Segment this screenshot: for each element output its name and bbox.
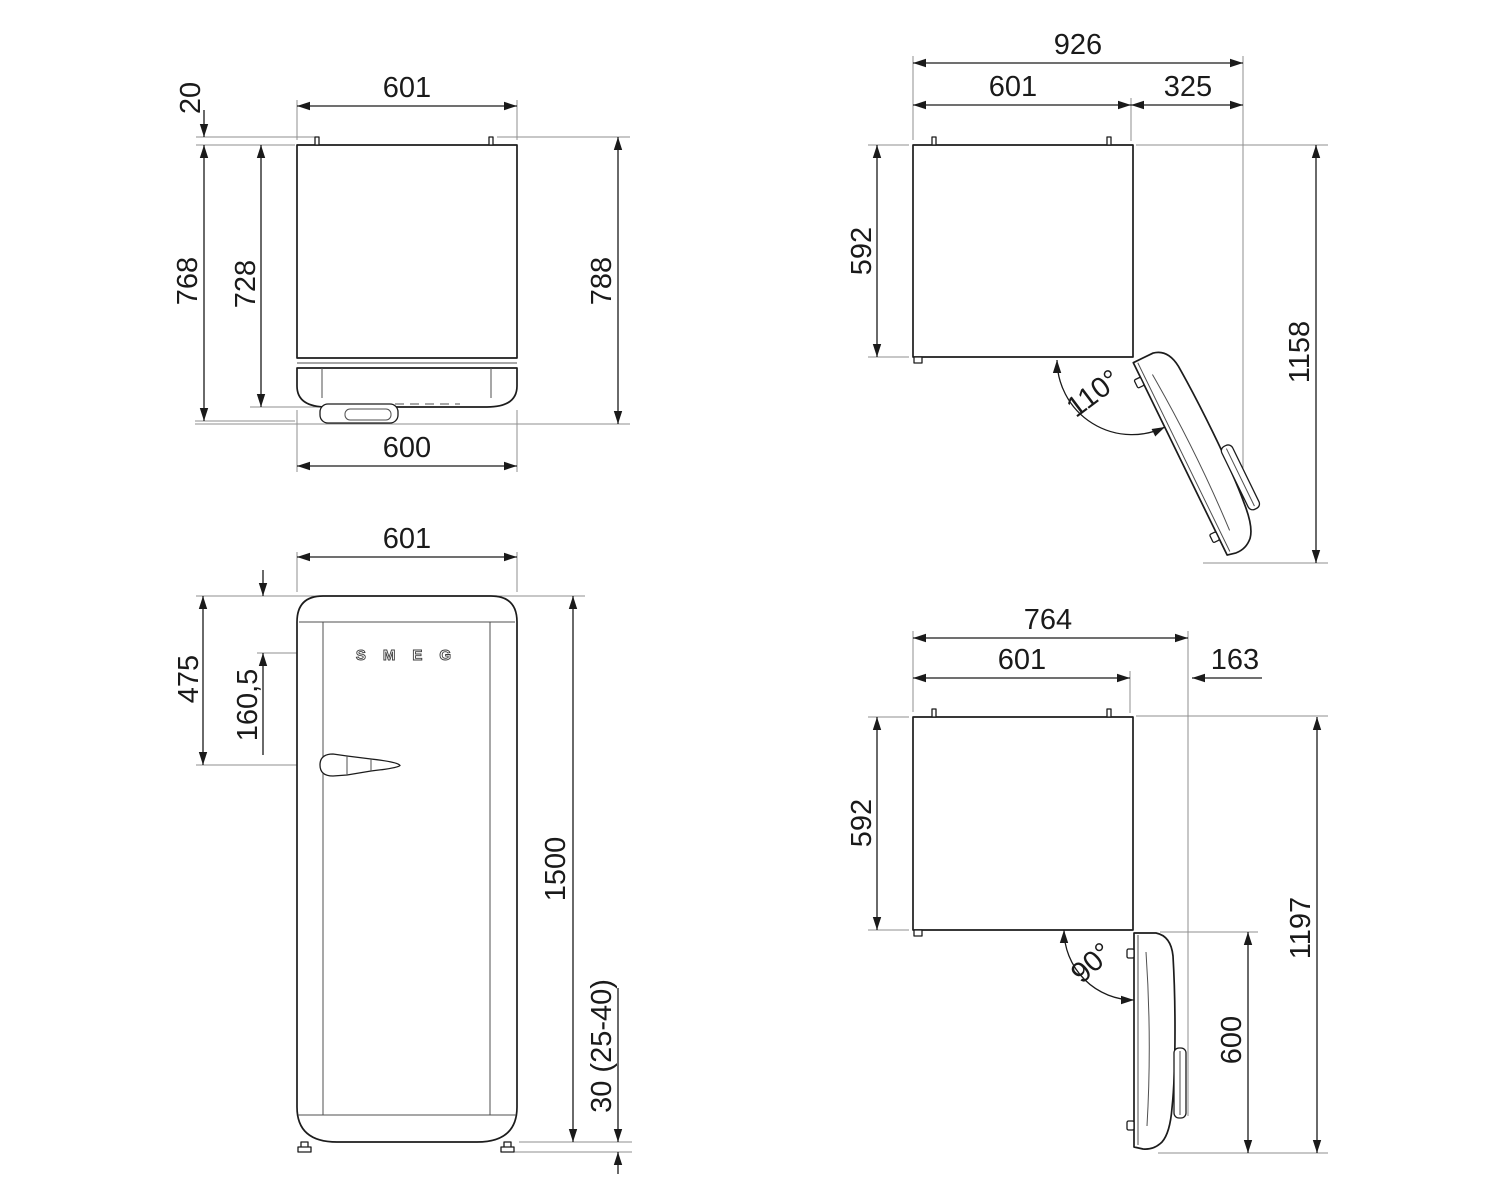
dim-label-open-depth: 1158 [1284,321,1316,383]
brand-logo: SMEG [356,647,468,664]
dim-label-total-width: 926 [1054,29,1102,61]
dim-label-height: 1500 [540,837,572,902]
dim-label-depth-768: 768 [172,257,204,305]
dim-label-total-width: 764 [1024,604,1072,636]
dim-label-cabinet-width: 601 [998,644,1046,676]
dim-label-door-angle: 110° [1061,364,1126,424]
fridge-front-body [297,596,517,1142]
hinge-pin-left-icon [315,137,319,145]
cabinet-body [913,145,1133,357]
hinge-pin-left-icon [932,709,936,717]
open-door-90 [1127,933,1186,1149]
foot-tab [914,930,922,936]
dim-label-feet-height: 30 (25-40) [586,979,618,1113]
dim-label-door-depth: 600 [1216,1016,1248,1064]
dim-label-depth-788: 788 [586,257,618,305]
hinge-pin-right-icon [1107,709,1111,717]
open-door-110 [1127,340,1275,560]
dim-label-open-depth: 1197 [1285,897,1317,959]
dim-label-door-angle: 90° [1065,937,1119,990]
dim-label-swing-width: 325 [1164,71,1212,103]
foot-right [501,1142,514,1152]
door-open-110-view: 110° 926 601 325 592 1158 [846,29,1328,563]
cabinet-body-top [297,145,517,358]
fridge-dimension-diagram: 601 20 768 728 788 600 110° 926 [0,0,1500,1200]
hinge-pin-left-icon [932,137,936,145]
dim-label-cabinet-depth: 592 [846,799,878,847]
top-view: 601 20 768 728 788 600 [172,72,630,472]
dim-label-logo-height: 160,5 [232,669,264,742]
door-open-90-view: 90° 764 601 163 592 600 1197 [846,604,1328,1153]
dim-label-cabinet-depth: 592 [846,227,878,275]
dim-label-door-width: 600 [383,432,431,464]
hinge-pin-right-icon [489,137,493,145]
dim-label-width: 601 [383,523,431,555]
hinge-pin-right-icon [1107,137,1111,145]
dim-label-pin-height: 20 [175,82,207,114]
dim-label-cabinet-width: 601 [989,71,1037,103]
dim-label-depth-728: 728 [230,260,262,308]
dim-label-handle-height: 475 [173,655,205,703]
foot-left [298,1142,311,1152]
dimension-drawing-page: 601 20 768 728 788 600 110° 926 [0,0,1500,1200]
closed-door-top [297,368,517,407]
foot-tab [914,357,922,363]
dim-label-width-top: 601 [383,72,431,104]
front-view: SMEG 601 475 160,5 1500 30 (25-40) [173,523,632,1174]
dim-label-swing-width: 163 [1211,644,1259,676]
cabinet-body [913,717,1133,930]
